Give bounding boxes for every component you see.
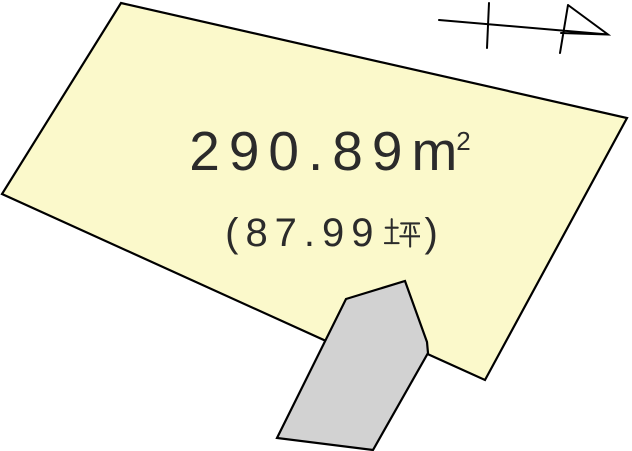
area-tsubo-value: 87.99 <box>245 211 380 255</box>
area-sqm-label: 290.89m2 <box>150 124 510 179</box>
plot-diagram: 290.89m2 (87.99 ) <box>0 0 632 451</box>
sqm-unit-base: m <box>411 120 458 182</box>
land-parcel-shape <box>2 3 627 380</box>
sqm-unit: m2 <box>411 120 470 182</box>
tsubo-unit-glyph <box>384 215 420 249</box>
area-sqm-value: 290.89 <box>189 120 411 182</box>
sqm-unit-superscript: 2 <box>456 126 470 156</box>
tsubo-open-paren: ( <box>225 211 245 255</box>
north-arrow-icon <box>439 3 608 53</box>
area-tsubo-label: (87.99 ) <box>155 213 515 253</box>
tsubo-close-paren: ) <box>425 211 445 255</box>
